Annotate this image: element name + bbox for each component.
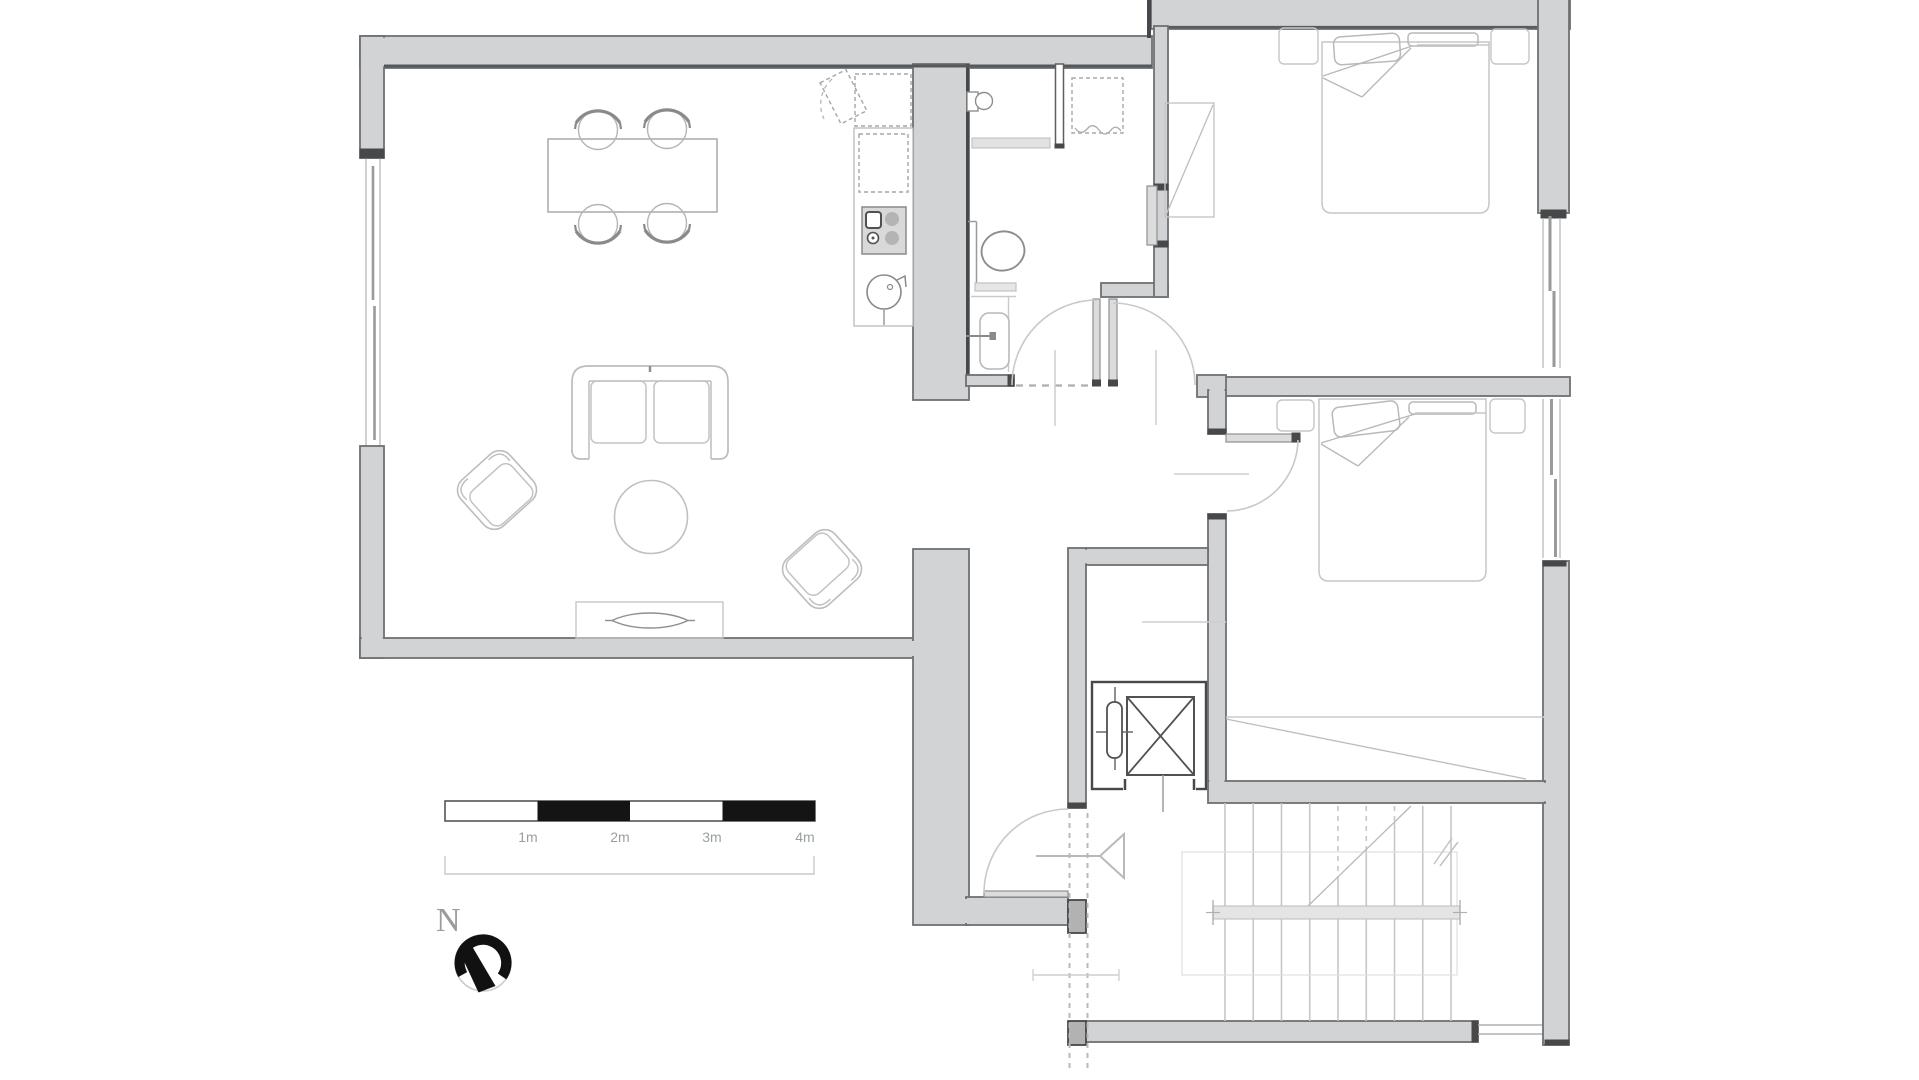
svg-text:N: N [436,902,461,939]
svg-text:4m: 4m [795,829,814,845]
svg-text:3m: 3m [702,829,721,845]
svg-text:2m: 2m [610,829,629,845]
svg-text:1m: 1m [518,829,537,845]
